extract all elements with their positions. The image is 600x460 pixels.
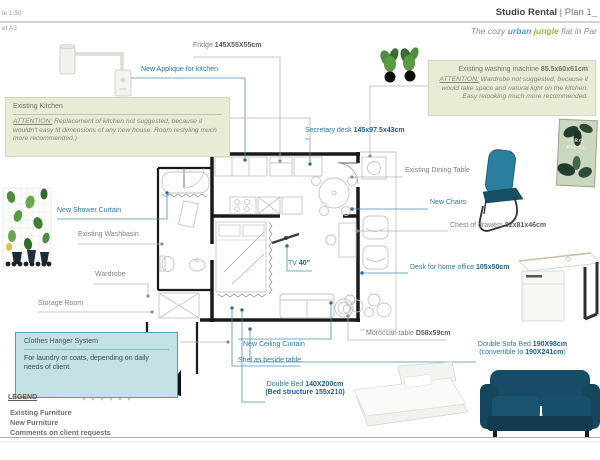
attention-word: ATTENTION: xyxy=(440,76,479,83)
applique-lamp-image xyxy=(60,44,131,96)
label-wardrobe: Wardrobe xyxy=(95,271,125,279)
sheet-format: et A3 xyxy=(2,25,17,32)
poster-line2: PICAL xyxy=(561,144,593,152)
washing-box-title: Existing washing machine 85.5x60x61cm xyxy=(436,66,588,73)
blue-chair-image xyxy=(480,149,523,231)
attention-word: ATTENTION: xyxy=(13,118,52,125)
washing-label: Existing washing machine xyxy=(458,66,541,73)
plan-sheet: le 1:50 et A3 Studio Rental | Plan 1_ Th… xyxy=(0,0,600,460)
moroccan-name: Moroccan table xyxy=(366,330,416,337)
chest-dims: 82x81x46cm xyxy=(505,222,546,229)
label-new-chairs: New Chairs xyxy=(430,199,466,207)
label-dining-table: Existing Dining Table xyxy=(405,167,470,175)
hanger-box-divider xyxy=(24,349,169,350)
label-secretary-desk: Secretary desk 145x97.5x43cm xyxy=(305,127,405,135)
label-home-office-desk: Desk for home office 105x50cm xyxy=(410,264,510,272)
plan-bed-and-curtains xyxy=(162,194,299,297)
subtitle-urban-word: urban xyxy=(508,26,532,36)
sofa-bed-conv-a: (convertible to xyxy=(479,349,525,356)
sofa-bed-conv-dims: 190X241cm xyxy=(525,349,563,356)
poster-text: TRO PICAL xyxy=(561,137,594,151)
double-bed-line2: (Bed structure 155x210) xyxy=(255,389,355,397)
legend-item-new: New Furniture xyxy=(10,418,58,427)
sofa-bed-name: Double Sofa Bed xyxy=(478,341,533,348)
label-double-bed: Double Bed 140X200cm (Bed structure 155x… xyxy=(255,381,355,398)
sofa-bed-line2: (convertible to 190X241cm) xyxy=(455,349,590,357)
tv-name: TV xyxy=(288,260,299,267)
desk-name: Desk for home office xyxy=(410,264,476,271)
tv-size: 40" xyxy=(299,260,310,267)
kitchen-box-attention: ATTENTION: Replacement of kitchen not su… xyxy=(13,118,222,144)
page-title: Studio Rental | Plan 1_ xyxy=(496,7,597,18)
label-shelf-beside-table: Shel as beside table xyxy=(238,357,301,365)
legend-item-existing: Existing Furniture xyxy=(10,408,72,417)
hanger-box-body: For laundry or coats, depending on daily… xyxy=(24,354,169,373)
label-moroccan-table: Moroccan table D58x59cm xyxy=(366,330,450,338)
double-bed-image xyxy=(354,362,468,426)
label-double-sofa-bed: Double Sofa Bed 190X98cm (convertible to… xyxy=(455,341,590,358)
label-new-applique: New Applique for kitchen xyxy=(141,66,218,74)
page-title-plan: | Plan 1_ xyxy=(557,7,597,18)
hanging-plants-image xyxy=(378,46,420,82)
sofa-bed-conv-c: ) xyxy=(563,349,565,356)
subtitle-prefix: The cozy xyxy=(471,26,508,36)
office-desk-image xyxy=(519,253,600,321)
page-title-project: Studio Rental xyxy=(496,7,557,18)
subtitle-jungle-word: jungle xyxy=(531,26,558,36)
secretary-dims: 145x97.5x43cm xyxy=(354,127,405,134)
kitchen-box-divider xyxy=(13,114,222,115)
hanger-box-title: Clothes Hanger System xyxy=(24,338,169,345)
fridge-dims: 145X55X55cm xyxy=(215,42,262,49)
comment-box-clothes-hanger: Clothes Hanger System For laundry or coa… xyxy=(15,332,178,398)
subtitle-suffix: flat in Par xyxy=(559,26,597,36)
floor-plan-walls xyxy=(147,152,360,392)
comment-box-existing-kitchen: Existing Kitchen ATTENTION: Replacement … xyxy=(5,97,230,157)
kitchen-box-title: Existing Kitchen xyxy=(13,103,222,110)
double-bed-line1: Double Bed 140X200cm xyxy=(255,381,355,389)
legend-item-comments: Comments on client requests xyxy=(10,428,111,437)
label-storage-room: Storage Room xyxy=(38,300,83,308)
double-bed-name: Double Bed xyxy=(267,381,306,388)
label-washbasin: Existing Washbasin xyxy=(78,231,139,239)
comment-box-washing-machine: Existing washing machine 85.5x60x61cm AT… xyxy=(428,60,596,116)
washing-box-attention: ATTENTION: Wardrobe not suggested, becau… xyxy=(436,76,588,102)
double-bed-structure: (Bed structure 155x210) xyxy=(265,389,344,396)
moroccan-dims: D58x59cm xyxy=(416,330,451,337)
secretary-name: Secretary desk xyxy=(305,127,354,134)
label-shower-curtain: New Shower Curtain xyxy=(57,207,121,215)
double-bed-dims: 140X200cm xyxy=(305,381,343,388)
legend-title: LEGEND xyxy=(8,394,37,401)
leader-dots-existing xyxy=(146,154,371,343)
washing-dims: 85.5x60x61cm xyxy=(541,66,588,73)
sofa-bed-dims: 190X98cm xyxy=(533,341,567,348)
desk-dims: 105x50cm xyxy=(476,264,509,271)
fridge-name: Fridge xyxy=(193,42,215,49)
chest-name: Chest of drawers xyxy=(450,222,505,229)
sofa-bed-line1: Double Sofa Bed 190X98cm xyxy=(455,341,590,349)
page-subtitle: The cozy urban jungle flat in Par xyxy=(471,26,597,36)
label-ceiling-curtain: New Ceiling Curtain xyxy=(243,341,305,349)
shower-curtain-image xyxy=(3,188,51,266)
sheet-scale: le 1:50 xyxy=(2,10,22,17)
label-fridge: Fridge 145X55X55cm xyxy=(193,42,262,50)
label-chest-of-drawers: Chest of drawers 82x81x46cm xyxy=(450,222,546,230)
label-tv: TV 40" xyxy=(288,260,310,268)
sofa-bed-image xyxy=(480,370,600,437)
tropical-poster-image xyxy=(555,119,597,187)
